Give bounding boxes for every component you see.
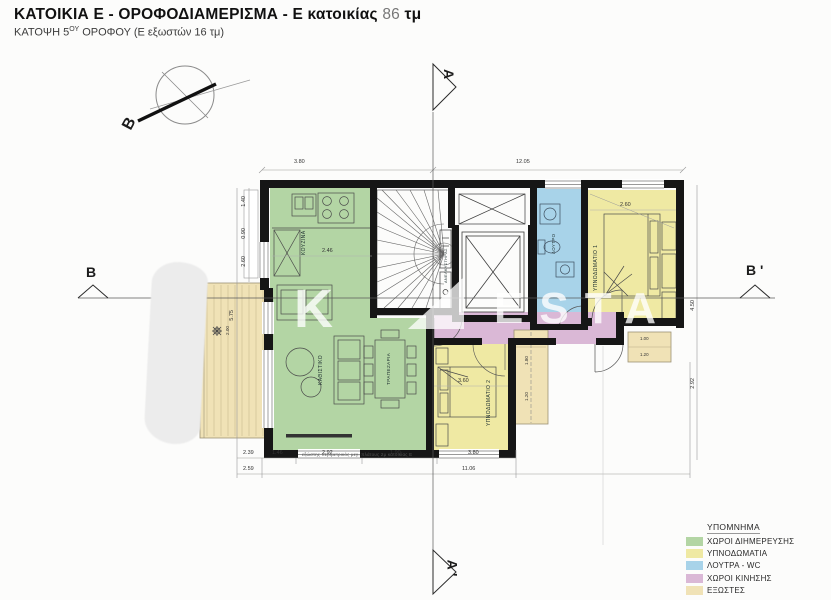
- room-label-kitchen: ΚΟΥΖΙΝΑ: [301, 222, 307, 264]
- subtitle-sup: ΟΥ: [69, 26, 79, 33]
- legend-swatch-balconies: [686, 586, 703, 595]
- north-arrow-icon: [138, 66, 250, 124]
- section-label-right: B ': [746, 262, 763, 278]
- section-label-bottom: A ': [444, 560, 460, 577]
- room-bedroom2-fill: [434, 344, 508, 452]
- room-label-bathroom: ΛΟΥΤΡΟ: [551, 226, 556, 262]
- page-subtitle: ΚΑΤΟΨΗ 5ΟΥ ΟΡΟΦΟΥ (Ε εξωστών 16 τμ): [14, 26, 224, 39]
- dim-bed1: 2.60: [620, 202, 631, 208]
- legend-row-baths: ΛΟΥΤΡΑ - WC: [686, 560, 826, 572]
- dim-top-right: 12.05: [516, 159, 530, 165]
- dim-left-balcony: 2.00: [225, 326, 230, 335]
- room-label-dining: ΤΡΑΠΕΖΑΡΙΑ: [386, 342, 391, 396]
- dim-strip-1: 1.80: [524, 356, 529, 365]
- dim-total-right: 11.06: [462, 466, 475, 472]
- dim-bottom-5: 3.80: [468, 450, 479, 456]
- title-area-value: 86: [382, 6, 400, 23]
- elevator-icon: [462, 232, 524, 312]
- dim-bed2: 3.60: [458, 378, 469, 384]
- legend-title: ΥΠΟΜΝΗΜΑ: [707, 522, 760, 534]
- subtitle-pre: ΚΑΤΟΨΗ 5: [14, 27, 69, 39]
- dim-top-left: 3.80: [294, 159, 305, 165]
- legend-row-circulation: ΧΩΡΟΙ ΚΙΝΗΣΗΣ: [686, 572, 826, 584]
- tv-bench-icon: [286, 434, 352, 438]
- dim-left-1: 1.40: [241, 196, 247, 207]
- page-title: ΚΑΤΟΙΚΙΑ Ε - ΟΡΟΦΟΔΙΑΜΕΡΙΣΜΑ - Ε κατοικί…: [14, 6, 421, 24]
- dim-left-total: 5.75: [229, 310, 235, 321]
- plant-icon: [212, 326, 222, 336]
- section-chevron-right-icon: [740, 285, 770, 298]
- room-label-bedroom1: ΥΠΝΟΔΩΜΑΤΙΟ 1: [593, 228, 599, 308]
- legend: ΥΠΟΜΝΗΜΑ ΧΩΡΟΙ ΔΙΗΜΕΡΕΥΣΗΣ ΥΠΝΟΔΩΜΑΤΙΑ Λ…: [686, 517, 826, 597]
- dim-strip-2: 1.20: [524, 392, 529, 401]
- legend-row-dayspaces: ΧΩΡΟΙ ΔΙΗΜΕΡΕΥΣΗΣ: [686, 535, 826, 547]
- section-chevron-left-icon: [78, 285, 108, 298]
- legend-row-balconies: ΕΞΩΣΤΕΣ: [686, 585, 826, 597]
- legend-row-bedrooms: ΥΠΝΟΔΩΜΑΤΙΑ: [686, 547, 826, 559]
- dim-left-3: 2.60: [241, 256, 247, 267]
- title-unit: τμ: [404, 6, 421, 23]
- dim-bottom-2: 1.46: [272, 450, 283, 456]
- dim-small-balcony-2: 1.20: [640, 352, 649, 357]
- dim-right-upper: 4.50: [690, 300, 696, 311]
- watermark-logo-icon: [408, 277, 464, 329]
- section-label-top: A: [441, 69, 457, 79]
- dim-right-lower: 2.92: [690, 378, 696, 389]
- erasure-blob: [143, 261, 208, 446]
- dimension-note: εξώστης περιμετρικός μεγ. πλάτους 2μ κατ…: [302, 452, 412, 457]
- floorplan-sheet: ΚΑΤΟΙΚΙΑ Ε - ΟΡΟΦΟΔΙΑΜΕΡΙΣΜΑ - Ε κατοικί…: [0, 0, 831, 600]
- dim-bottom-1: 2.39: [243, 450, 254, 456]
- legend-swatch-bedrooms: [686, 549, 703, 558]
- dim-kitchen: 2.46: [322, 248, 333, 254]
- room-label-bedroom2: ΥΠΝΟΔΩΜΑΤΙΟ 2: [486, 364, 492, 442]
- dim-total-left: 2.59: [243, 466, 254, 472]
- room-label-living: ΚΑΘΙΣΤΙΚΟ: [318, 346, 324, 394]
- legend-swatch-circulation: [686, 574, 703, 583]
- subtitle-post: ΟΡΟΦΟΥ (Ε εξωστών 16 τμ): [79, 27, 224, 39]
- title-main: ΚΑΤΟΙΚΙΑ Ε - ΟΡΟΦΟΔΙΑΜΕΡΙΣΜΑ - Ε κατοικί…: [14, 6, 378, 23]
- section-label-left: B: [86, 264, 96, 280]
- room-bedroom1-fill: [588, 190, 676, 320]
- dim-left-2: 0.90: [241, 228, 247, 239]
- dim-small-balcony-1: 1.00: [640, 336, 649, 341]
- legend-swatch-dayspaces: [686, 537, 703, 546]
- legend-swatch-baths: [686, 561, 703, 570]
